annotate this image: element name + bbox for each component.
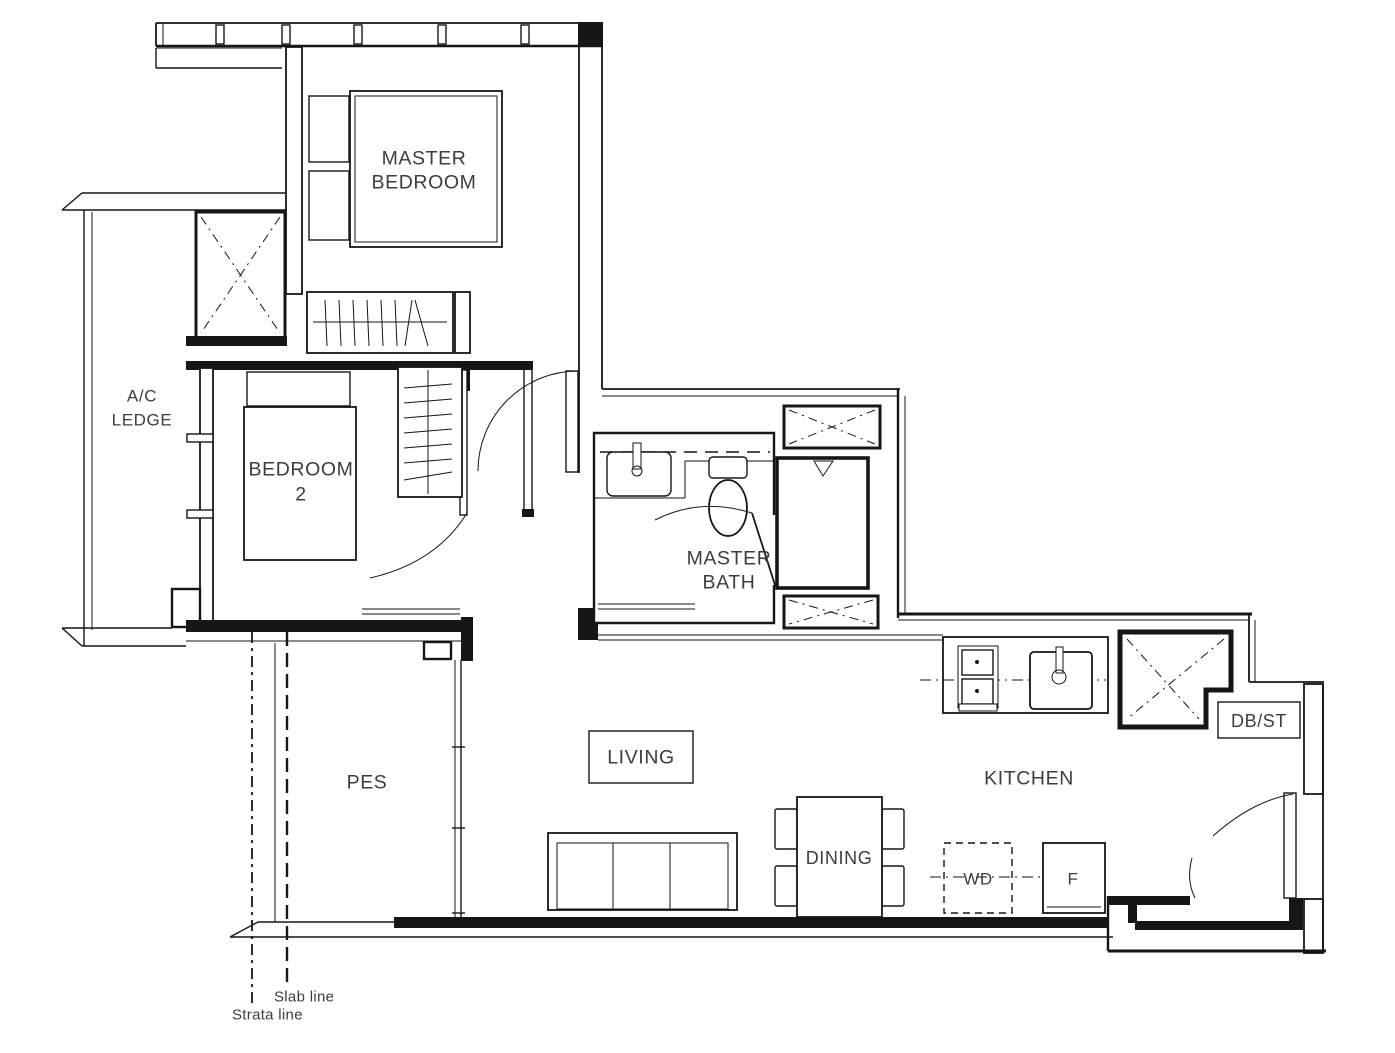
- stove-icon: [958, 646, 998, 711]
- ac-shaft-x-icon: [196, 212, 285, 338]
- pes-lines: [252, 632, 465, 1004]
- floor-plan: MASTER BEDROOM A/C LEDGE BEDROOM 2 MASTE…: [0, 0, 1395, 1053]
- label-wd: WD: [963, 871, 993, 888]
- kitchen-sink-icon: [1030, 647, 1092, 709]
- label-ac-ledge-1: A/C: [127, 388, 157, 405]
- kitchen-counter: [920, 637, 1108, 713]
- label-fridge: F: [1068, 871, 1079, 888]
- sofa-icon: [548, 833, 737, 910]
- floor-plan-drawing: [0, 0, 1395, 1053]
- label-bedroom2-1: BEDROOM: [249, 460, 354, 480]
- master-bedroom-door-swing-icon: [478, 371, 578, 472]
- label-dining: DINING: [806, 849, 873, 867]
- label-master-bedroom-2: BEDROOM: [372, 173, 477, 193]
- master-bath: [594, 406, 880, 628]
- label-strata-line: Strata line: [232, 1008, 303, 1023]
- label-living: LIVING: [607, 748, 675, 768]
- label-master-bath-1: MASTER: [687, 549, 772, 569]
- label-slab-line: Slab line: [274, 990, 334, 1005]
- entrance-door-swing-icon: [1190, 793, 1303, 922]
- label-ac-ledge-2: LEDGE: [112, 412, 173, 429]
- label-pes: PES: [347, 773, 388, 793]
- top-facade-band: [156, 22, 603, 68]
- toilet-icon: [709, 457, 747, 536]
- kitchen-shaft-x-icon: [1120, 632, 1231, 727]
- bedroom2-wardrobe-icon: [398, 367, 462, 497]
- label-master-bath-2: BATH: [703, 573, 756, 593]
- label-db-st: DB/ST: [1231, 712, 1287, 730]
- master-wardrobe-icon: [307, 292, 470, 353]
- label-master-bedroom-1: MASTER: [382, 149, 467, 169]
- label-kitchen: KITCHEN: [984, 769, 1074, 789]
- label-bedroom2-2: 2: [295, 485, 306, 505]
- shower-icon: [777, 458, 868, 588]
